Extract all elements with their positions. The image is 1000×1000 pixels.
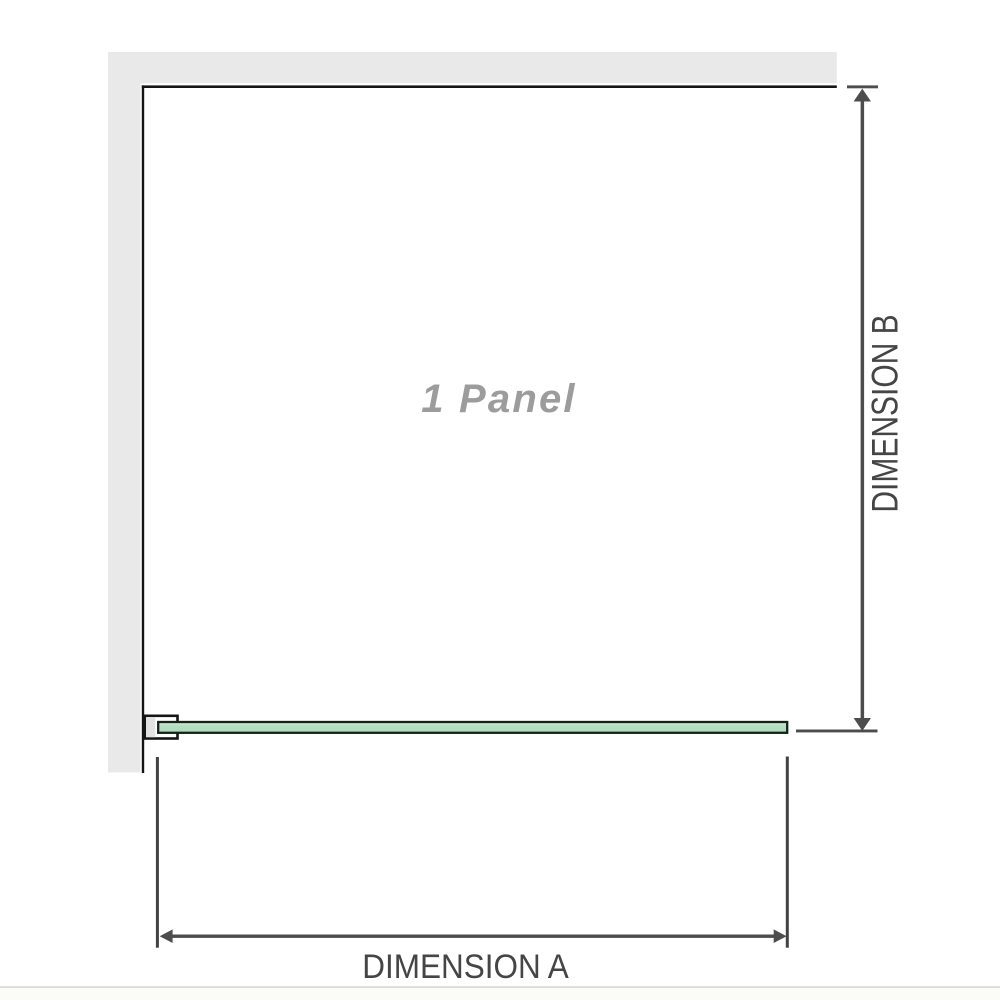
svg-text:1 Panel: 1 Panel <box>421 377 576 421</box>
svg-text:DIMENSION B: DIMENSION B <box>866 314 906 512</box>
svg-text:DIMENSION A: DIMENSION A <box>362 948 569 987</box>
